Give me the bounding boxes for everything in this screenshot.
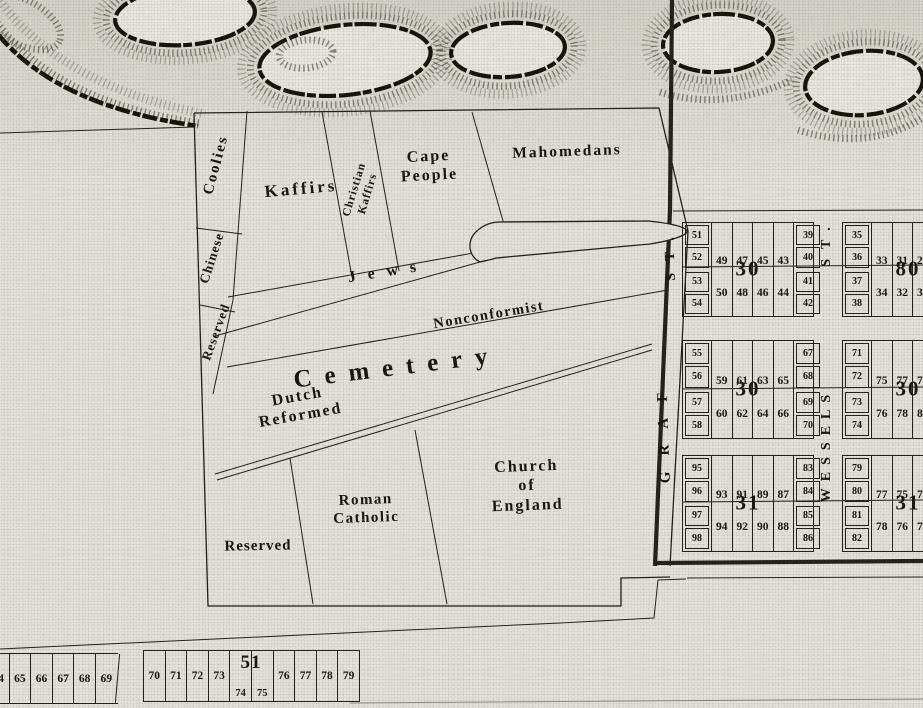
block-number: 80	[896, 256, 921, 281]
plot-number: 73	[845, 392, 869, 413]
plot-number: 75	[872, 341, 893, 390]
stacked-plots: 7172	[843, 341, 872, 390]
plot-number: 70	[143, 651, 166, 701]
plot-number: 60	[712, 390, 733, 439]
plot-number: 49	[712, 223, 733, 270]
hill-mound	[784, 28, 923, 139]
street-label-wessels: WESSELS	[812, 355, 842, 535]
plot-number: 88	[774, 504, 795, 552]
section-label-mahomedans: Mahomedans	[492, 135, 643, 168]
stacked-plots: 5556	[683, 341, 712, 390]
map-canvas: Coolies Chinese Reserved Kaffirs Christi…	[0, 0, 923, 708]
plot-number: 65	[10, 654, 32, 703]
section-label-church-of-england: Church of England	[456, 446, 599, 527]
stacked-plots: 3536	[843, 223, 872, 270]
plot-number: 69	[94, 654, 120, 703]
bottom-block-number: 51	[227, 652, 275, 674]
plot-number: 35	[845, 225, 869, 245]
block-number: 30	[736, 376, 761, 401]
plot-number: 41	[796, 272, 820, 292]
plot-number: 65	[774, 341, 795, 390]
plot-number: 81	[845, 506, 869, 527]
grid-block: 5556596163656768575860626466697030	[682, 340, 814, 439]
hill-mound	[644, 0, 793, 93]
plot-number: 51	[685, 225, 709, 245]
plot-number: 37	[845, 272, 869, 292]
plot-number: 94	[712, 504, 733, 552]
plot-number: 66	[31, 654, 53, 703]
bottom-plots-right: 7071727374757677787951	[143, 650, 360, 702]
plot-number: 59	[712, 341, 733, 390]
plot-number: 57	[685, 392, 709, 413]
plot-number: 77	[295, 651, 317, 701]
block-number: 31	[736, 490, 761, 515]
plot-number: 97	[685, 506, 709, 527]
stacked-plots: 7980	[843, 456, 872, 504]
section-label-reserved-lower: Reserved	[198, 531, 318, 561]
plot-number: 79	[845, 458, 869, 479]
section-label-roman-catholic: Roman Catholic	[295, 481, 437, 538]
plot-number: 36	[845, 247, 869, 267]
plot-number: 50	[712, 270, 733, 317]
plot-number: 58	[685, 415, 709, 436]
plot-number: 43	[774, 223, 795, 270]
plot-number: 54	[685, 294, 709, 314]
plot-number: 52	[685, 247, 709, 267]
plot-number: 77	[872, 456, 893, 504]
plot-number: 74	[845, 415, 869, 436]
plot-number: 53	[685, 272, 709, 292]
stacked-plots: 5152	[683, 223, 712, 270]
grid-block: 3536333129373834323080	[842, 222, 923, 317]
stacked-plots: 3738	[843, 270, 872, 317]
plot-number: 95	[685, 458, 709, 479]
plot-number: 71	[845, 343, 869, 364]
stacked-plots: 5758	[683, 390, 712, 439]
plot-number: 66	[774, 390, 795, 439]
stacked-plots: 4142	[794, 270, 822, 317]
grid-block: 7980777573818278767431	[842, 455, 923, 552]
block-number: 30	[736, 256, 761, 281]
block-number: 30	[896, 376, 921, 401]
plot-number: 38	[845, 294, 869, 314]
jews-capsule-shape	[470, 221, 687, 262]
plot-number: 78	[872, 504, 893, 552]
plot-number: 80	[845, 481, 869, 502]
stacked-plots: 7374	[843, 390, 872, 439]
plot-number: 78	[317, 651, 339, 701]
plot-number: 87	[774, 456, 795, 504]
plot-number: 82	[845, 528, 869, 549]
plot-number: 98	[685, 528, 709, 549]
plot-number: 93	[712, 456, 733, 504]
plot-number: 55	[685, 343, 709, 364]
street-label-graf-st: ST.	[657, 223, 685, 284]
grid-block: 7172757779737476788030	[842, 340, 923, 439]
plot-number: 79	[338, 651, 360, 701]
street-label-wessels-st: ST.	[814, 212, 840, 272]
stacked-plots: 9798	[683, 504, 712, 552]
stacked-plots: 9596	[683, 456, 712, 504]
stacked-plots: 8182	[843, 504, 872, 552]
plot-number: 64	[0, 654, 10, 703]
grid-block: 9596939189878384979894929088858631	[682, 455, 814, 552]
plot-number: 68	[74, 654, 96, 703]
bottom-plots-left: 646566676869	[0, 653, 118, 704]
section-label-cape-people: Cape People	[388, 138, 471, 194]
plot-number: 72	[187, 651, 209, 701]
plot-number: 33	[872, 223, 893, 270]
plot-number: 71	[166, 651, 188, 701]
grid-block: 5152494745433940535450484644414230	[682, 222, 814, 317]
plot-number: 96	[685, 481, 709, 502]
hill-mound	[431, 1, 585, 99]
hill-mound	[94, 0, 276, 66]
block-number: 31	[896, 490, 921, 515]
plot-number: 76	[274, 651, 296, 701]
plot-number: 42	[796, 294, 820, 314]
plot-number: 76	[872, 390, 893, 439]
street-label-graf: GRAF	[647, 360, 682, 501]
plot-number: 44	[774, 270, 795, 317]
plot-number: 56	[685, 366, 709, 387]
plot-number: 34	[872, 270, 893, 317]
plot-number: 67	[53, 654, 75, 703]
plot-number: 72	[845, 366, 869, 387]
stacked-plots: 5354	[683, 270, 712, 317]
